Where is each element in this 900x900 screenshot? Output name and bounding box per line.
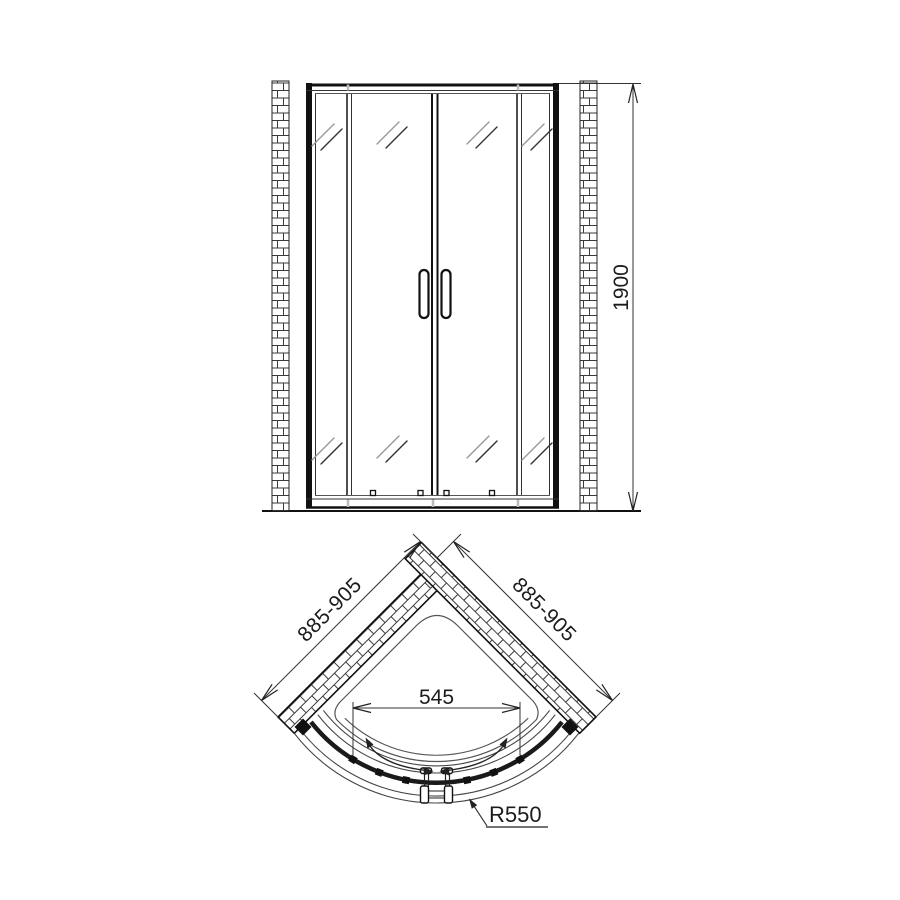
track-arc-outer (294, 733, 579, 803)
glass-mark (312, 438, 342, 464)
left-wall-dimension-label: 885-905 (293, 573, 366, 646)
radius-callout: R550 (469, 799, 548, 828)
track-arc-inner (323, 710, 549, 765)
guide-block-right (445, 786, 453, 803)
glass-mark (312, 124, 342, 150)
technical-drawing: 1900 885-905 885-905 (0, 0, 900, 900)
door-handle-right (442, 270, 451, 318)
height-dimension-label: 1900 (610, 264, 633, 311)
opening-width-label: 545 (419, 686, 454, 709)
opening-width-dimension: 545 (353, 686, 520, 755)
roller-marker (490, 491, 495, 496)
plan-view: 885-905 885-905 (254, 534, 620, 827)
frame-right-post (553, 83, 559, 508)
guide-links (429, 791, 445, 798)
right-wall-column (580, 81, 597, 511)
right-wall-dimension-label: 885-905 (507, 573, 580, 646)
glass-mark (467, 122, 497, 148)
door-frame (306, 83, 559, 508)
glass-mark (522, 124, 552, 150)
radius-label: R550 (489, 802, 542, 827)
guide-block-left (421, 786, 429, 803)
roller-marker (402, 776, 410, 784)
roller-marker (418, 491, 423, 496)
glass-mark (377, 122, 407, 148)
roller-marker (444, 491, 449, 496)
glass-mark (377, 436, 407, 462)
door-track-arcs (294, 710, 579, 803)
left-wall-column (272, 81, 289, 511)
frame-left-post (306, 83, 312, 508)
opening-extension-lines (353, 702, 520, 755)
glass-mark (467, 436, 497, 462)
glass-mark (522, 438, 552, 464)
roller-marker (371, 491, 376, 496)
drawing-canvas: 1900 885-905 885-905 (0, 0, 900, 900)
roller-marker (463, 776, 471, 784)
height-dimension: 1900 (610, 84, 638, 511)
front-elevation-view: 1900 (262, 81, 641, 511)
radius-leader-arrowhead (469, 799, 477, 809)
door-handle-left (420, 270, 429, 318)
